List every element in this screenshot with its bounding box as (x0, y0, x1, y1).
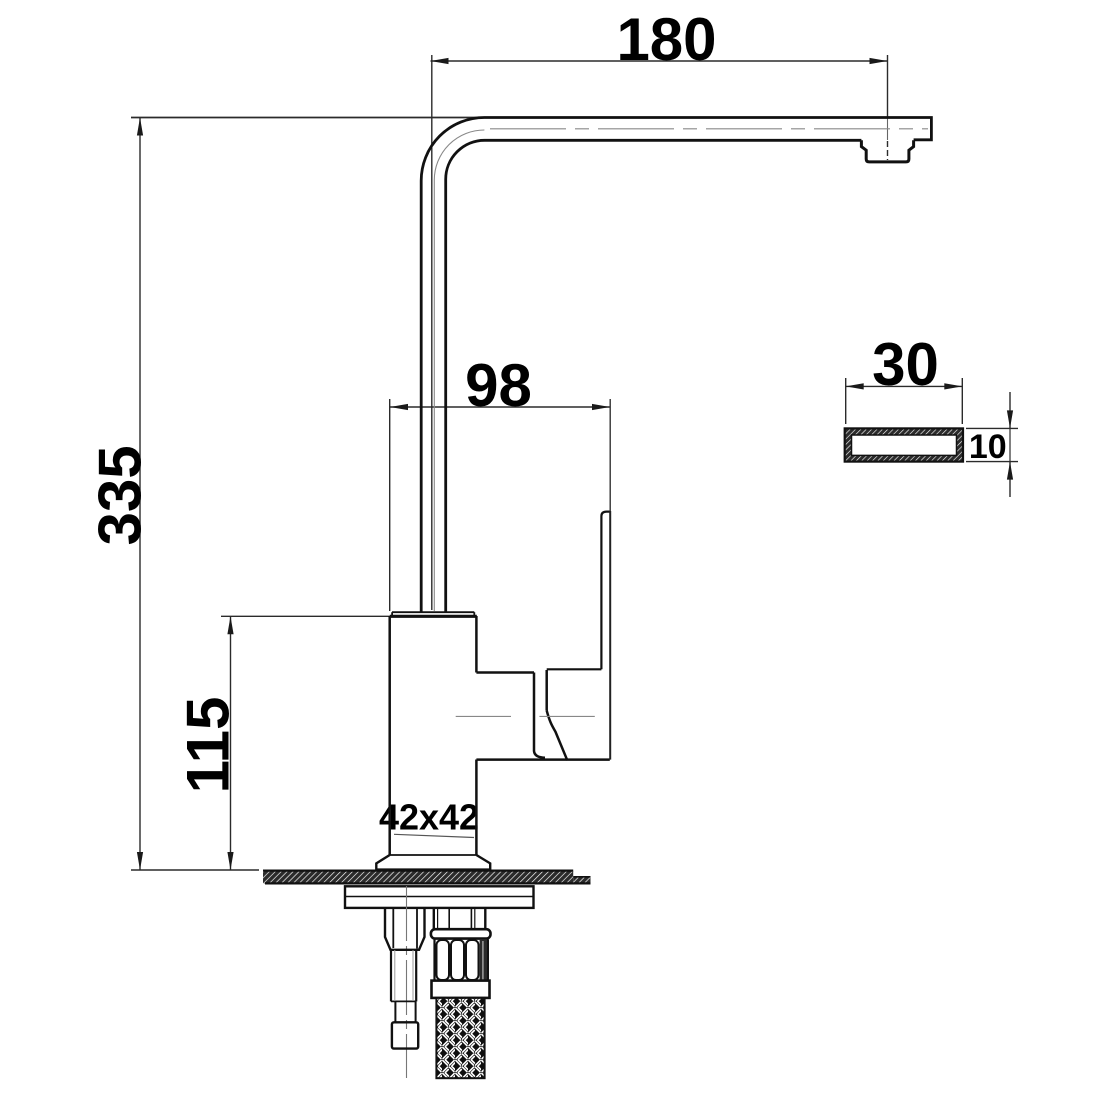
svg-text:98: 98 (465, 352, 532, 419)
svg-text:180: 180 (616, 6, 716, 73)
svg-text:335: 335 (87, 445, 154, 545)
svg-text:10: 10 (969, 428, 1007, 466)
svg-text:115: 115 (175, 697, 242, 794)
svg-text:42x42: 42x42 (379, 797, 479, 838)
svg-text:30: 30 (872, 331, 939, 398)
